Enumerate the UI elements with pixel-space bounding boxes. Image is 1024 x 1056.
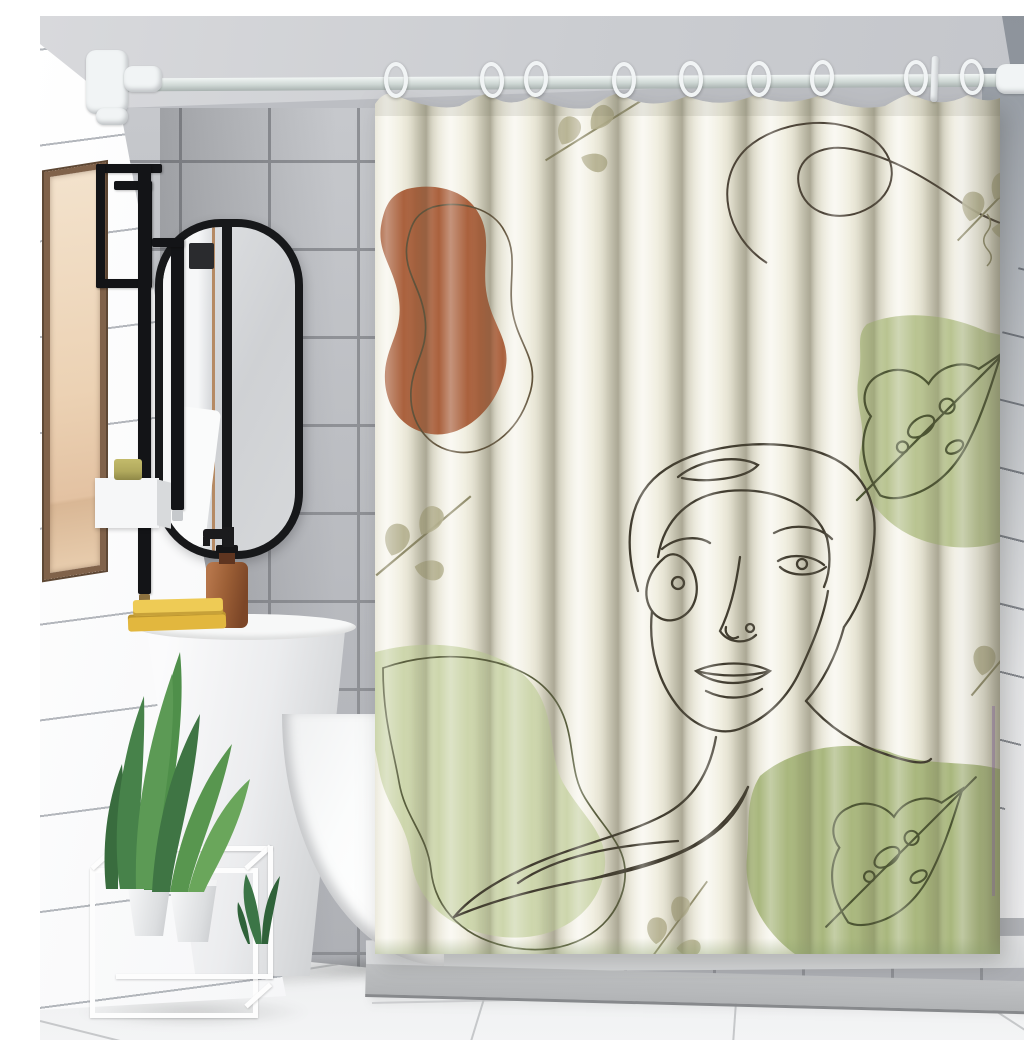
rod-right-cap bbox=[996, 64, 1024, 94]
towel-rack-key-left bbox=[96, 164, 105, 288]
towel-rack-key-top bbox=[96, 164, 162, 173]
curtain-hook bbox=[384, 62, 408, 98]
towel-rack-bar-left bbox=[138, 164, 151, 594]
wall-box-shelf-side bbox=[157, 479, 171, 528]
towel-rack-bar-right bbox=[171, 238, 184, 510]
rod-left-mount bbox=[86, 50, 128, 114]
yellow-towel-top bbox=[133, 598, 223, 616]
towel-rack-hook-top bbox=[152, 238, 184, 247]
wall-box-shelf bbox=[95, 478, 159, 528]
curtain-fold-shading bbox=[375, 86, 1000, 954]
snake-plant bbox=[92, 644, 267, 894]
plant-stand-back-bottom bbox=[116, 974, 273, 979]
curtain-edge-tint bbox=[992, 706, 995, 896]
mirror-reflection-window-edge bbox=[212, 227, 215, 551]
olive-jar bbox=[114, 459, 142, 480]
bathroom-product-photo bbox=[40, 16, 1024, 1040]
soap-pump-tip bbox=[203, 537, 210, 546]
curtain-hook bbox=[612, 62, 636, 98]
curtain-hook bbox=[747, 61, 771, 97]
curtain-hook bbox=[904, 60, 928, 96]
rod-left-mount-foot bbox=[96, 108, 128, 125]
towel-rack-silver-tip bbox=[172, 510, 183, 521]
curtain-bottom-tint bbox=[375, 938, 1000, 954]
rod-left-mount-arm bbox=[124, 66, 162, 92]
mirror-reflection-rack-bar bbox=[222, 227, 232, 551]
mirror-reflection-bracket bbox=[189, 243, 214, 269]
shower-curtain bbox=[375, 86, 1000, 954]
